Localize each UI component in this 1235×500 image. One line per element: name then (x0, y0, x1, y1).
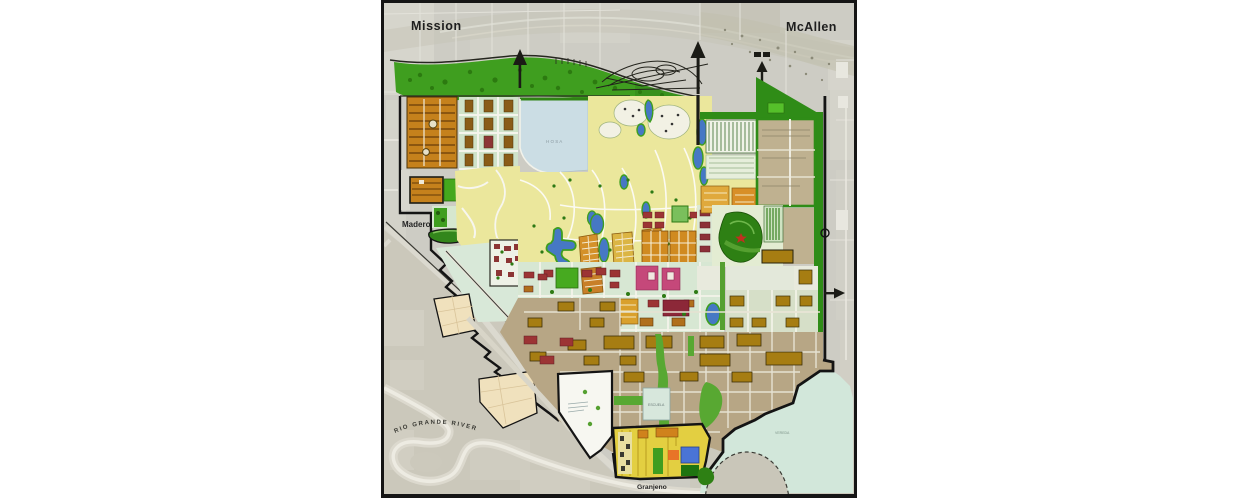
svg-text:ESCUELA: ESCUELA (648, 403, 665, 407)
svg-text:H O S A: H O S A (546, 139, 562, 144)
svg-text:Granjeno: Granjeno (637, 484, 667, 491)
svg-text:Mission: Mission (411, 19, 462, 33)
svg-text:McAllen: McAllen (786, 20, 837, 34)
svg-text:VEREDA: VEREDA (775, 431, 790, 435)
svg-text:Madero: Madero (402, 220, 431, 229)
